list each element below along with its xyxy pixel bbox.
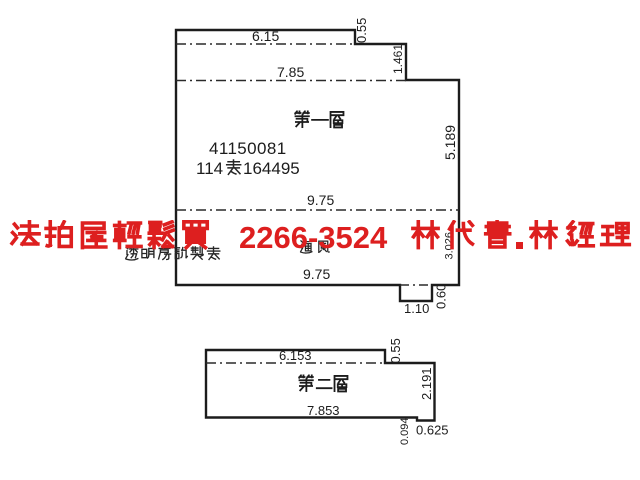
svg-text:1.10: 1.10 [404,301,429,316]
svg-text:0.55: 0.55 [388,338,403,363]
svg-text:0.094: 0.094 [399,417,411,445]
svg-text:164495: 164495 [243,159,300,178]
svg-text:1.461: 1.461 [391,44,405,74]
svg-text:114: 114 [196,159,223,178]
svg-text:9.75: 9.75 [307,192,334,208]
svg-text:2266-3524: 2266-3524 [239,220,388,255]
svg-text:9.75: 9.75 [303,266,330,282]
svg-text:2.191: 2.191 [419,367,434,400]
svg-text:0.60: 0.60 [434,284,449,309]
svg-text:7.853: 7.853 [307,403,340,418]
svg-text:7.85: 7.85 [277,64,304,80]
svg-text:5.189: 5.189 [442,125,458,160]
svg-text:6.153: 6.153 [279,348,312,363]
svg-text:0.625: 0.625 [416,423,449,438]
svg-text:0.55: 0.55 [354,18,369,43]
svg-text:6.15: 6.15 [252,28,279,44]
svg-text:41150081: 41150081 [209,139,287,158]
